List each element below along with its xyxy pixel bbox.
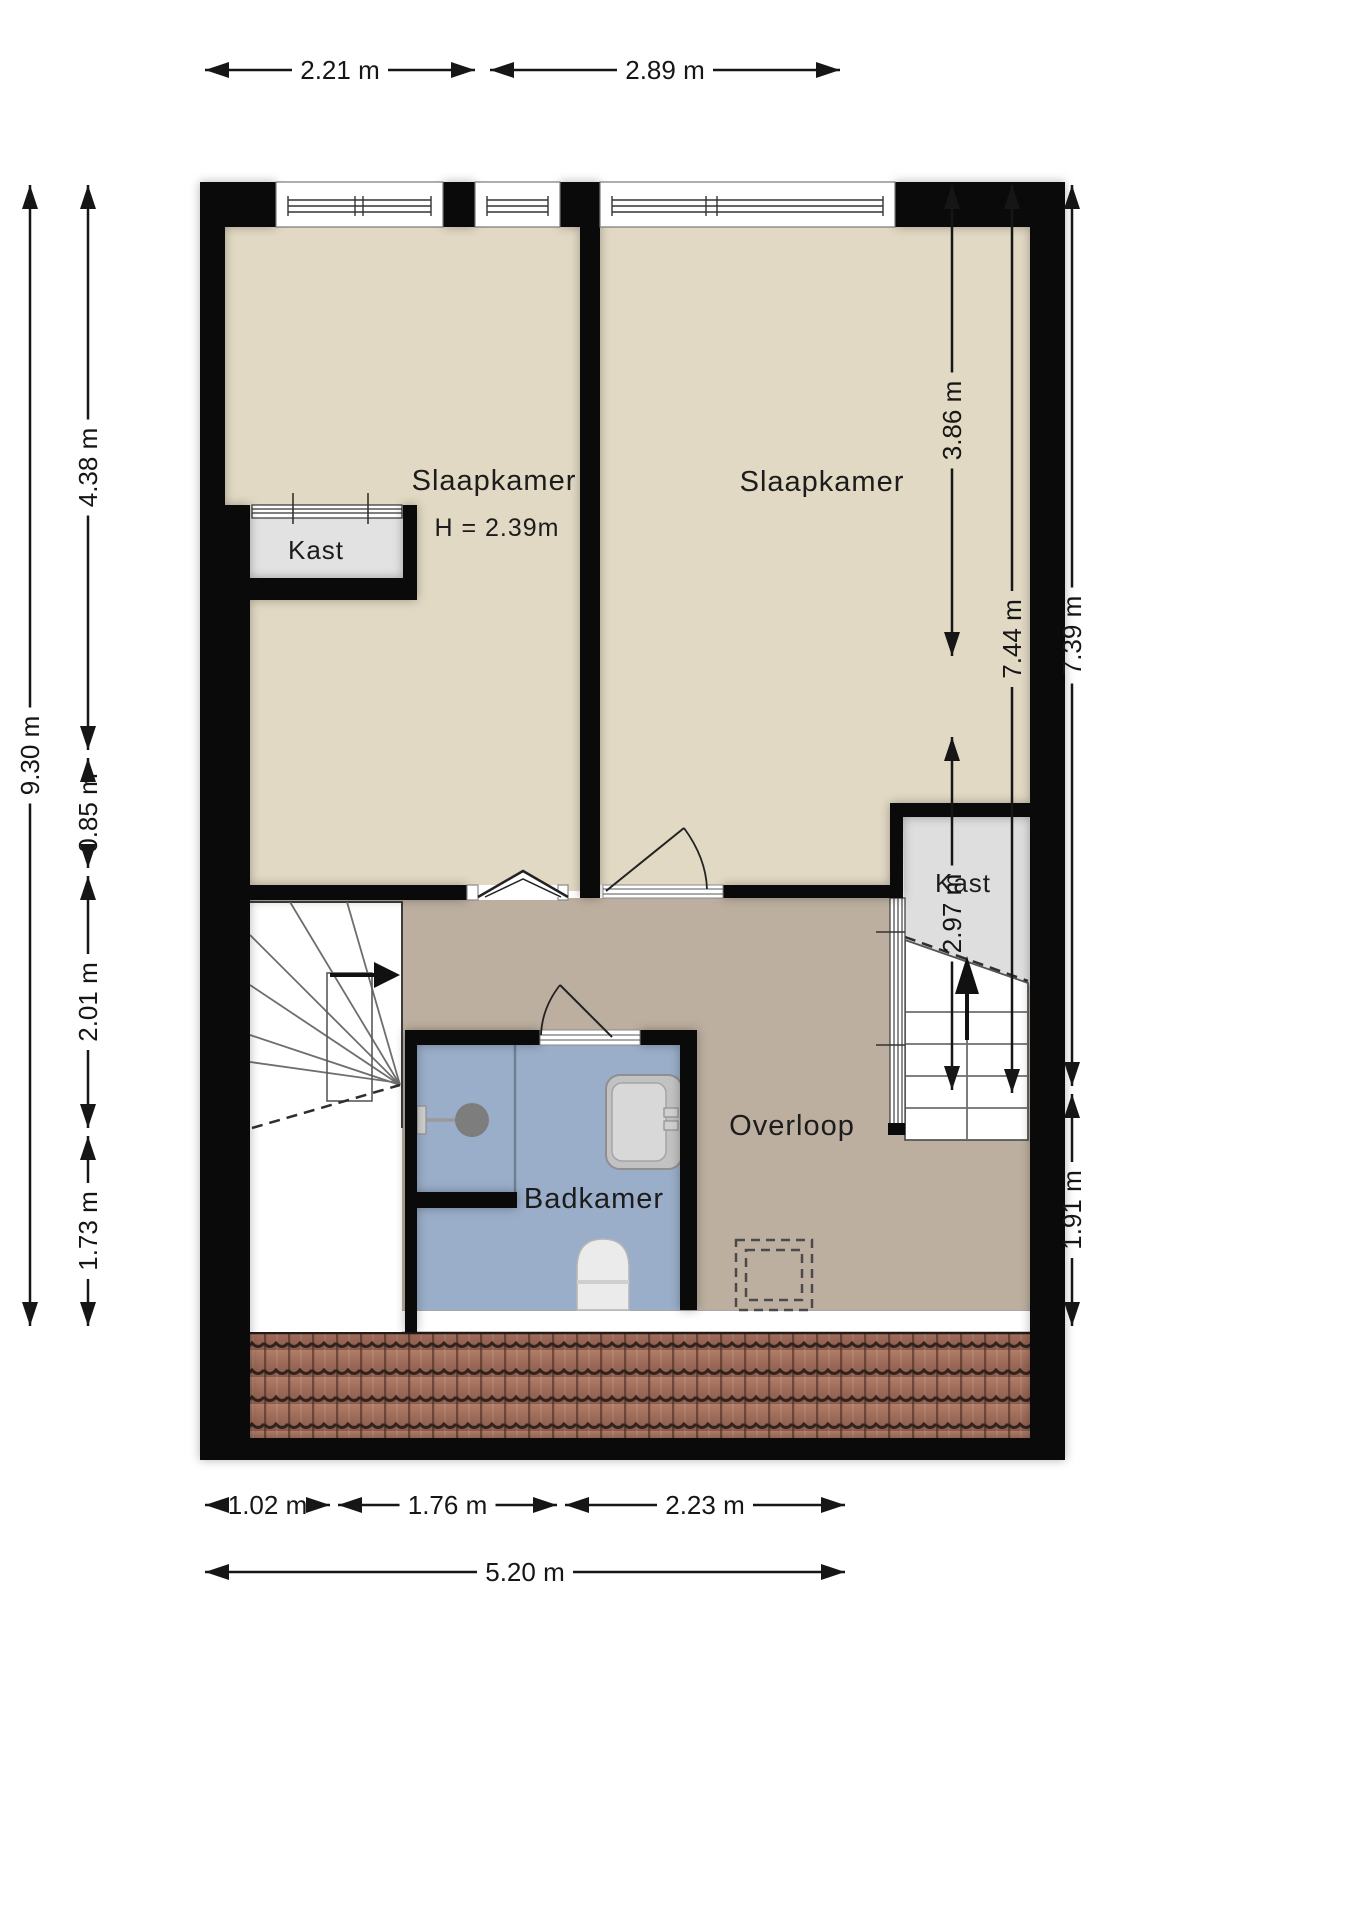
dimension-label: 2.01 m: [73, 962, 103, 1042]
dimension: 0.85 m: [73, 758, 103, 868]
stairs-left: [250, 902, 402, 1332]
sink-icon: [606, 1075, 682, 1169]
toilet-icon: [577, 1239, 629, 1310]
dimension: 2.01 m: [73, 876, 103, 1128]
dimension-label: 2.21 m: [300, 55, 380, 85]
dimension-label: 7.39 m: [1057, 596, 1087, 676]
closet-left-label: Kast: [288, 535, 344, 565]
dimension-label: 1.76 m: [408, 1490, 488, 1520]
bedroom-1-height-note: H = 2.39m: [434, 514, 559, 542]
dimension-label: 3.86 m: [937, 381, 967, 461]
dimension-label: 9.30 m: [15, 716, 45, 796]
bedroom-2-floor: [600, 227, 1030, 885]
dimension-label: 2.89 m: [625, 55, 705, 85]
dimension-label: 1.02 m: [228, 1490, 308, 1520]
landing-label: Overloop: [729, 1110, 855, 1142]
dimension: 2.23 m: [565, 1490, 845, 1520]
window: [276, 182, 443, 227]
dimension-label: 2.23 m: [665, 1490, 745, 1520]
roof-tiles: [250, 1332, 1030, 1438]
dimension-label: 0.85 m: [73, 773, 103, 853]
dimension: 5.20 m: [205, 1557, 845, 1587]
bedroom-2-label: Slaapkamer: [740, 466, 905, 498]
bathroom-label: Badkamer: [524, 1183, 664, 1215]
bedroom-1-label: Slaapkamer: [412, 465, 577, 497]
window: [475, 182, 560, 227]
dimension: 2.89 m: [490, 55, 840, 85]
bathroom: [417, 1045, 682, 1310]
dimension: 1.02 m: [205, 1490, 330, 1520]
dimension: 1.76 m: [338, 1490, 557, 1520]
floor-plan-page: Slaapkamer H = 2.39m Slaapkamer Kast Kas…: [0, 0, 1358, 1920]
dimension-label: 5.20 m: [485, 1557, 565, 1587]
dimension: 2.21 m: [205, 55, 475, 85]
dimension-label: 7.44 m: [997, 599, 1027, 679]
floor-plan: Slaapkamer H = 2.39m Slaapkamer Kast Kas…: [0, 0, 1358, 1920]
dimension: 1.73 m: [73, 1136, 103, 1326]
dimension: 9.30 m: [15, 185, 45, 1326]
dimension-label: 1.91 m: [1057, 1170, 1087, 1250]
dimension: 4.38 m: [73, 185, 103, 750]
window: [600, 182, 895, 227]
dimension-label: 4.38 m: [73, 428, 103, 508]
dimension-label: 1.73 m: [73, 1191, 103, 1271]
dimension-label: 2.97 m: [937, 874, 967, 954]
